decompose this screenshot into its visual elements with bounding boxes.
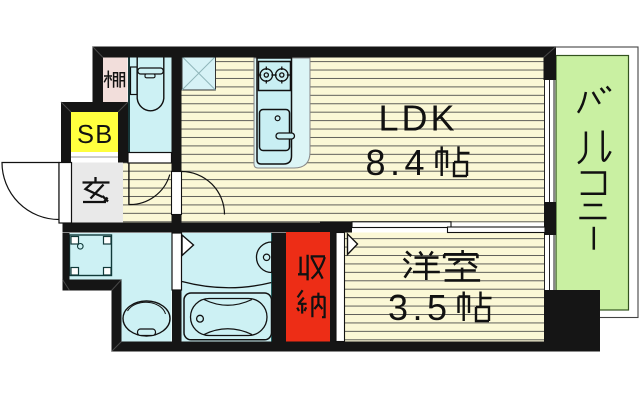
svg-text:LDK: LDK [378,97,457,138]
svg-text:8.4: 8.4 [366,142,430,183]
svg-text:SB: SB [77,121,113,149]
svg-text:3.5: 3.5 [388,287,452,328]
